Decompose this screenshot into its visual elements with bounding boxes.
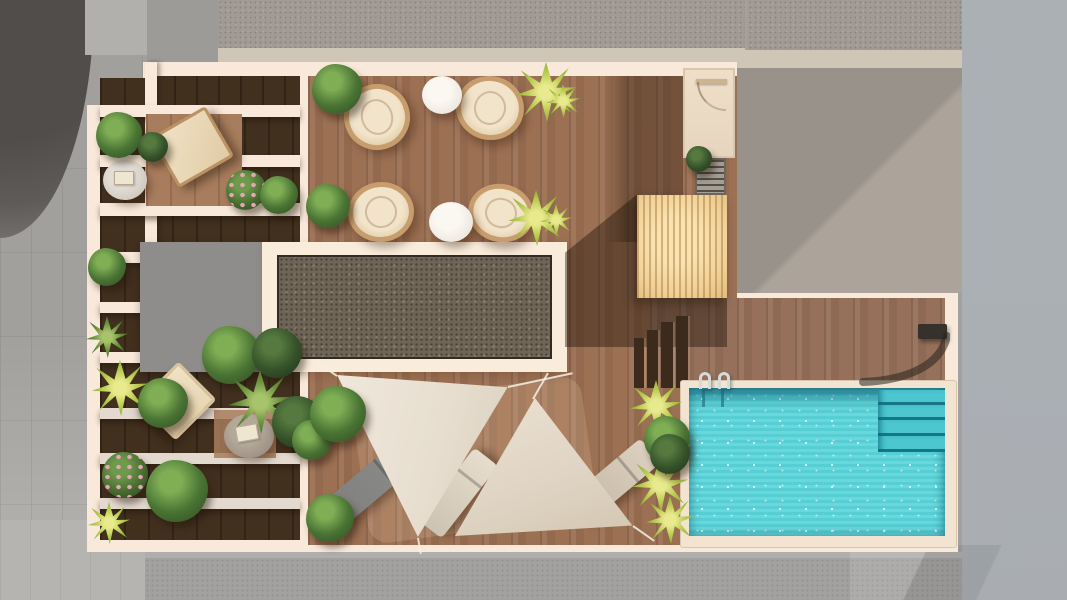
neighbor-building-face bbox=[737, 68, 962, 293]
dining-table bbox=[429, 202, 473, 242]
pool-steps bbox=[878, 390, 945, 452]
skylight-glass bbox=[277, 255, 552, 359]
pergola-slatted-roof bbox=[637, 195, 727, 298]
neighbor-roof-mid bbox=[147, 0, 218, 68]
neighbor-roof-edge-right bbox=[737, 50, 985, 68]
neighbor-roof-gravel-right bbox=[748, 0, 985, 50]
neighbor-roof-gravel-top bbox=[218, 0, 745, 48]
pool-step-tread bbox=[878, 436, 945, 452]
neighbor-roof-light bbox=[85, 0, 147, 55]
pool-step-tread bbox=[878, 405, 945, 420]
pool-ladder-leg bbox=[721, 390, 724, 407]
shower-shadow-arc bbox=[855, 330, 950, 388]
stair-tread bbox=[634, 338, 644, 388]
tray bbox=[114, 171, 134, 185]
neighbor-roof-bottom bbox=[145, 552, 962, 600]
pergola-beam bbox=[100, 302, 145, 313]
top-planter-band bbox=[152, 76, 300, 105]
stair-tread bbox=[676, 316, 688, 388]
rooftop-render bbox=[0, 0, 1067, 600]
neighbor-roof-edge-top bbox=[218, 48, 745, 62]
stair-tread bbox=[647, 330, 658, 388]
neighbor-roof-cool-strip bbox=[962, 0, 1067, 600]
dining-table bbox=[422, 76, 462, 114]
pool-ladder-leg bbox=[702, 390, 705, 407]
pool-ladder-hook bbox=[699, 372, 711, 389]
pool-ladder-hook bbox=[718, 372, 730, 389]
stair-tread bbox=[661, 322, 673, 388]
pool-step-tread bbox=[878, 390, 945, 405]
pool-step-tread bbox=[878, 420, 945, 436]
corner-shading-bottomright bbox=[850, 545, 1067, 600]
